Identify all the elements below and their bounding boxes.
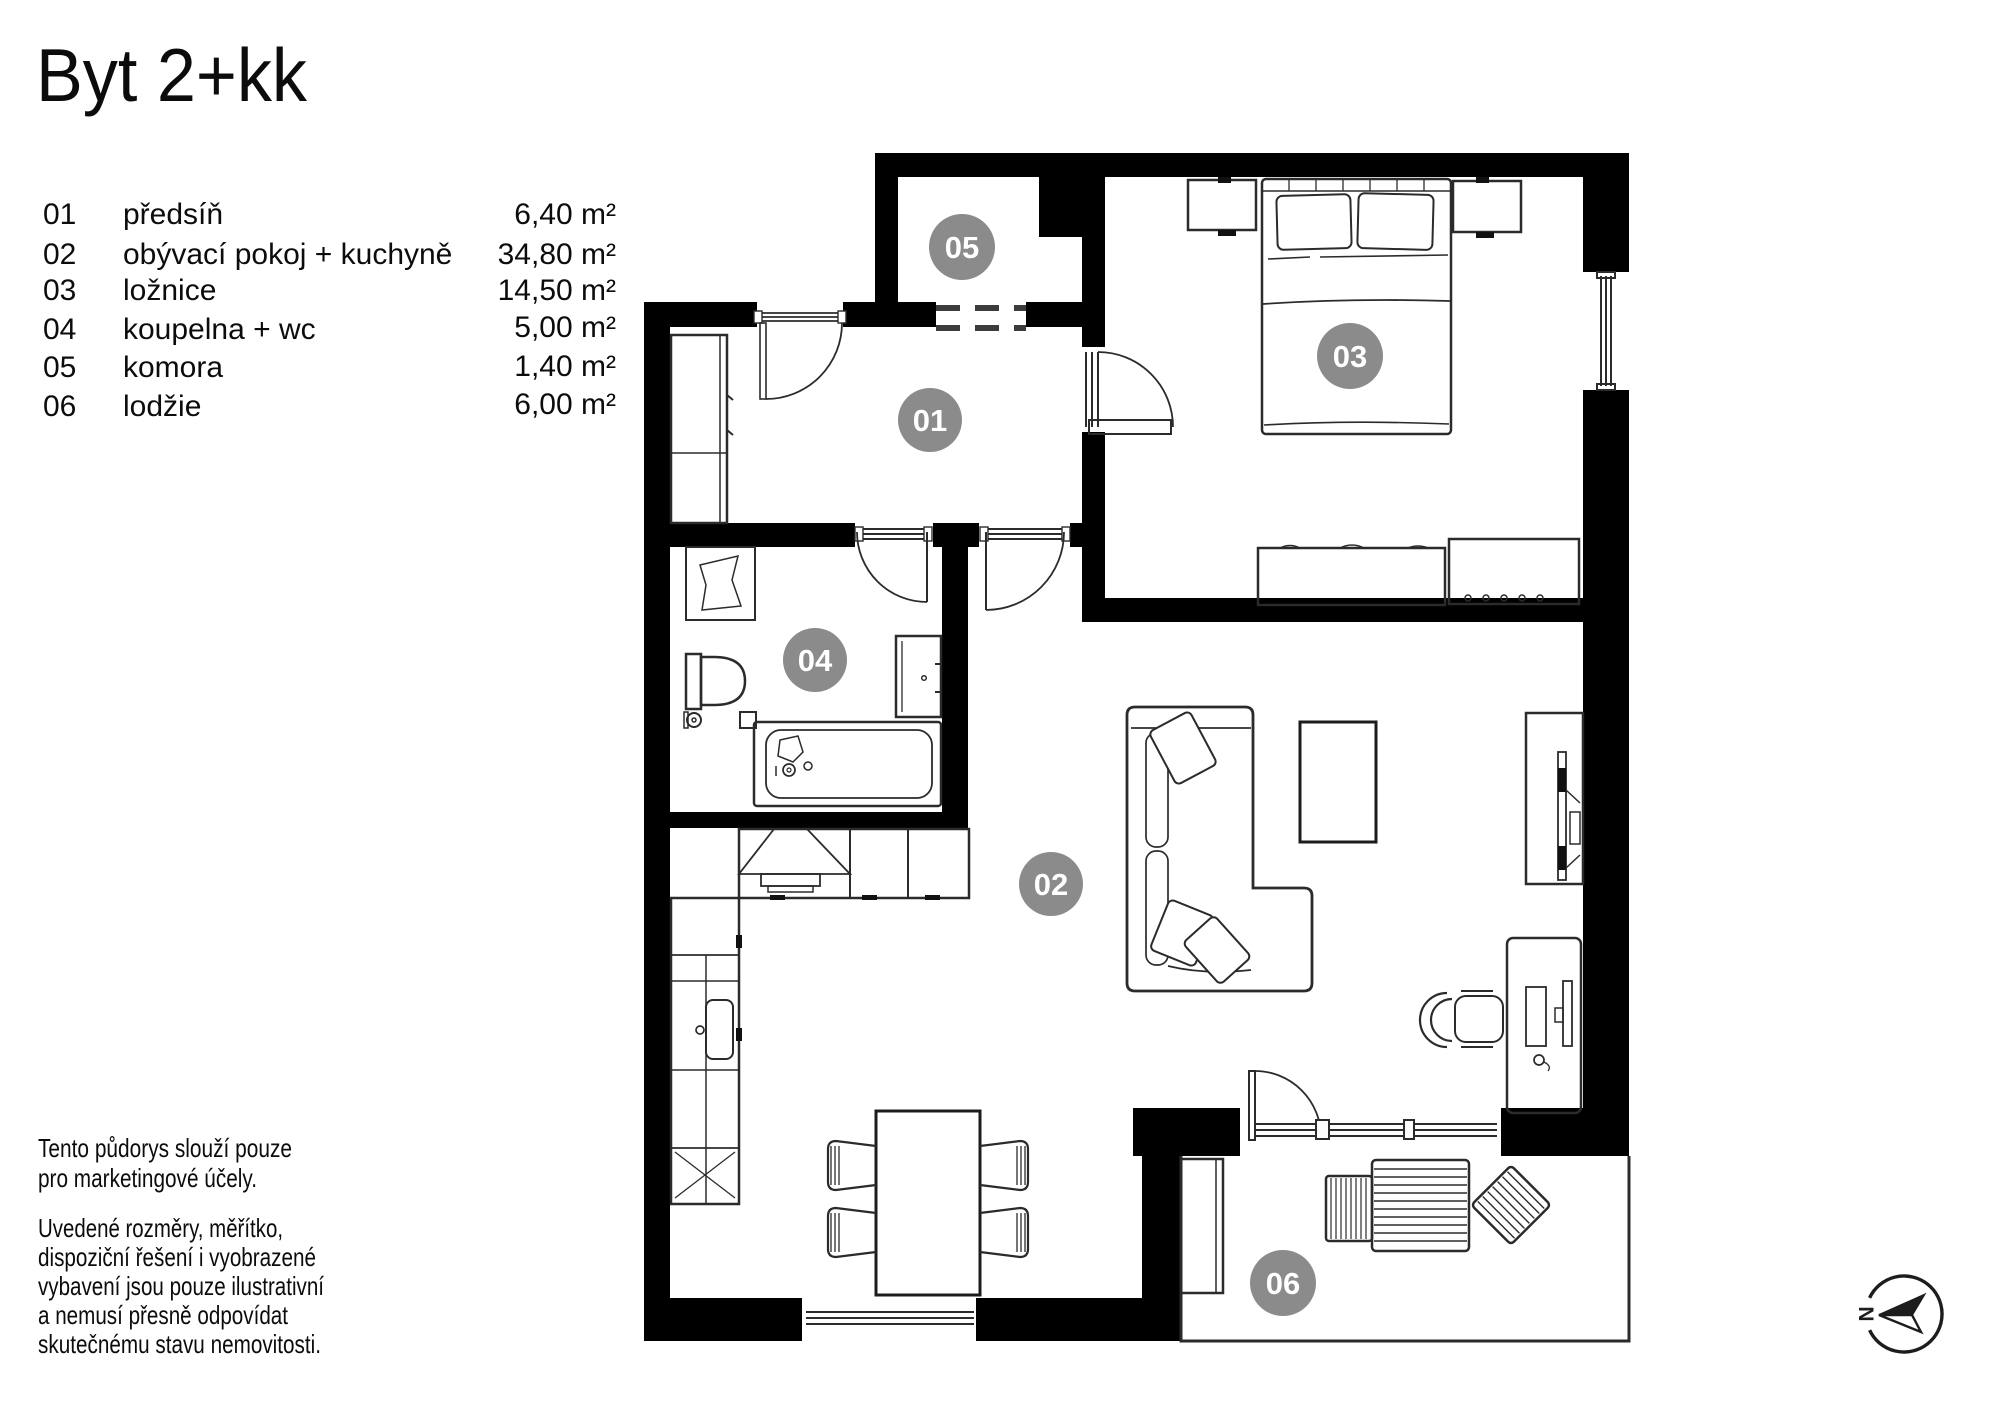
svg-text:ložnice: ložnice [123, 274, 216, 307]
svg-text:lodžie: lodžie [123, 390, 201, 423]
svg-text:předsíň: předsíň [123, 198, 223, 231]
svg-text:05: 05 [43, 351, 76, 384]
svg-text:pro marketingové účely.: pro marketingové účely. [38, 1163, 257, 1193]
svg-text:02: 02 [43, 238, 76, 271]
svg-text:vybavení jsou pouze ilustrativ: vybavení jsou pouze ilustrativní [38, 1271, 325, 1301]
svg-text:01: 01 [913, 403, 947, 438]
svg-text:6,00 m²: 6,00 m² [514, 388, 616, 421]
svg-text:Byt 2+kk: Byt 2+kk [36, 33, 307, 117]
svg-text:Tento půdorys slouží pouze: Tento půdorys slouží pouze [38, 1133, 292, 1163]
svg-text:34,80 m²: 34,80 m² [498, 238, 616, 271]
svg-text:03: 03 [1333, 339, 1367, 374]
svg-text:03: 03 [43, 274, 76, 307]
svg-text:14,50 m²: 14,50 m² [498, 274, 616, 307]
svg-text:dispoziční řešení i vyobrazené: dispoziční řešení i vyobrazené [38, 1242, 316, 1272]
svg-text:a nemusí přesně odpovídat: a nemusí přesně odpovídat [38, 1300, 289, 1330]
svg-text:5,00 m²: 5,00 m² [514, 311, 616, 344]
svg-text:obývací pokoj + kuchyně: obývací pokoj + kuchyně [123, 238, 452, 271]
svg-text:06: 06 [43, 390, 76, 423]
svg-text:06: 06 [1266, 1266, 1300, 1301]
svg-text:05: 05 [945, 230, 979, 265]
svg-text:01: 01 [43, 198, 76, 231]
svg-text:N: N [1854, 1306, 1877, 1321]
svg-text:koupelna + wc: koupelna + wc [123, 313, 316, 346]
svg-text:1,40 m²: 1,40 m² [514, 350, 616, 383]
svg-text:02: 02 [1034, 867, 1068, 902]
svg-text:6,40 m²: 6,40 m² [514, 198, 616, 231]
svg-text:04: 04 [798, 643, 833, 678]
svg-text:skutečnému stavu nemovitosti.: skutečnému stavu nemovitosti. [38, 1329, 321, 1359]
svg-text:komora: komora [123, 351, 223, 384]
svg-text:04: 04 [43, 313, 76, 346]
svg-text:Uvedené rozměry, měřítko,: Uvedené rozměry, měřítko, [38, 1213, 283, 1243]
